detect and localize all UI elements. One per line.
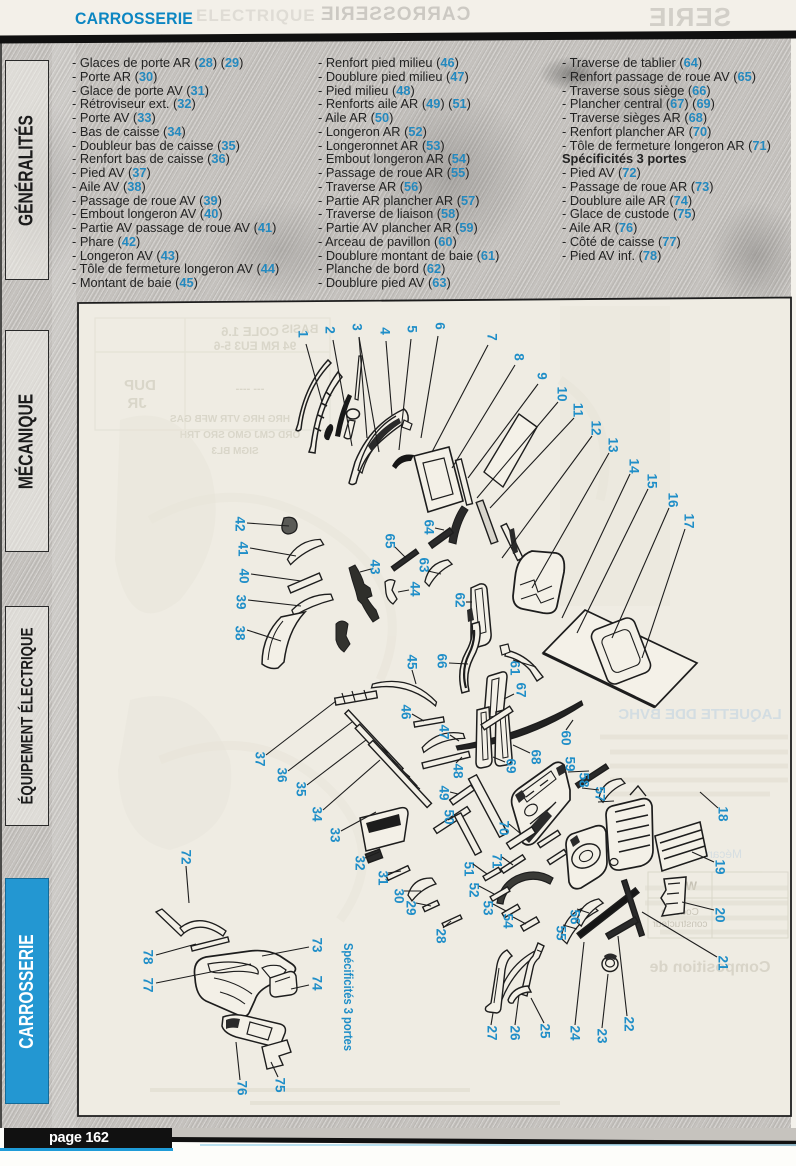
- svg-text:COLE 1.6: COLE 1.6: [221, 324, 279, 339]
- svg-text:43: 43: [368, 559, 383, 575]
- svg-text:69: 69: [504, 758, 519, 773]
- svg-text:DUP: DUP: [124, 377, 156, 394]
- svg-text:constructeur: constructeur: [652, 919, 708, 930]
- svg-text:73: 73: [310, 937, 325, 953]
- svg-text:13: 13: [606, 437, 621, 453]
- svg-text:2: 2: [323, 326, 338, 334]
- svg-text:76: 76: [235, 1080, 250, 1096]
- svg-text:26: 26: [508, 1025, 523, 1041]
- svg-text:8: 8: [512, 353, 527, 361]
- svg-text:49: 49: [437, 785, 452, 800]
- svg-text:57: 57: [593, 786, 608, 801]
- svg-text:62: 62: [453, 592, 468, 607]
- svg-text:LAQUETTE DDE BVHC: LAQUETTE DDE BVHC: [618, 706, 782, 723]
- svg-text:60: 60: [559, 730, 574, 745]
- svg-text:53: 53: [481, 900, 496, 916]
- svg-text:38: 38: [233, 625, 248, 641]
- svg-text:42: 42: [233, 516, 248, 531]
- svg-text:70: 70: [497, 820, 512, 835]
- svg-text:63: 63: [417, 557, 432, 573]
- svg-text:75: 75: [273, 1077, 288, 1093]
- svg-text:67: 67: [514, 682, 529, 697]
- svg-text:39: 39: [234, 594, 249, 609]
- svg-text:28: 28: [434, 928, 449, 944]
- svg-text:27: 27: [485, 1025, 500, 1040]
- svg-text:16: 16: [666, 492, 681, 508]
- svg-text:SIGM BL3: SIGM BL3: [211, 446, 259, 457]
- svg-text:--- ----: --- ----: [235, 383, 264, 395]
- svg-text:61: 61: [508, 660, 523, 676]
- svg-text:78: 78: [141, 949, 156, 965]
- svg-text:1: 1: [296, 330, 311, 338]
- svg-text:11: 11: [571, 403, 586, 418]
- svg-text:15: 15: [645, 473, 660, 489]
- svg-text:20: 20: [713, 907, 728, 922]
- svg-text:4: 4: [378, 327, 393, 335]
- svg-text:5: 5: [405, 325, 420, 333]
- svg-text:72: 72: [179, 849, 194, 864]
- svg-text:64: 64: [422, 519, 437, 535]
- svg-text:41: 41: [236, 541, 251, 557]
- svg-text:34: 34: [310, 806, 325, 822]
- svg-text:51: 51: [462, 861, 477, 877]
- svg-text:47: 47: [437, 724, 452, 739]
- svg-text:6: 6: [433, 322, 448, 330]
- svg-text:14: 14: [627, 458, 642, 474]
- svg-text:65: 65: [383, 533, 398, 549]
- svg-text:24: 24: [568, 1025, 583, 1041]
- svg-text:94 RM EU3 5-6: 94 RM EU3 5-6: [213, 339, 296, 353]
- svg-text:40: 40: [237, 568, 252, 583]
- svg-text:3: 3: [350, 323, 365, 331]
- svg-text:HRG HRG VTR WFB GAS: HRG HRG VTR WFB GAS: [170, 414, 290, 425]
- svg-text:10: 10: [555, 386, 570, 401]
- svg-text:77: 77: [141, 977, 156, 992]
- svg-text:54: 54: [501, 913, 516, 929]
- svg-text:9: 9: [535, 372, 550, 380]
- svg-text:25: 25: [538, 1023, 553, 1039]
- svg-text:35: 35: [294, 781, 309, 797]
- svg-text:22: 22: [622, 1016, 637, 1031]
- svg-text:JR: JR: [127, 395, 146, 412]
- svg-text:33: 33: [328, 827, 343, 843]
- svg-text:56: 56: [568, 909, 583, 925]
- svg-text:44: 44: [408, 581, 423, 597]
- svg-text:46: 46: [399, 704, 414, 720]
- svg-text:45: 45: [405, 654, 420, 670]
- svg-text:59: 59: [563, 756, 578, 771]
- svg-text:17: 17: [682, 513, 697, 528]
- svg-text:21: 21: [716, 955, 731, 971]
- svg-text:12: 12: [589, 420, 604, 435]
- svg-text:55: 55: [554, 925, 569, 941]
- svg-text:74: 74: [310, 975, 325, 991]
- svg-text:18: 18: [716, 806, 731, 822]
- svg-text:36: 36: [275, 767, 290, 783]
- svg-text:Spécificités 3 portes: Spécificités 3 portes: [341, 943, 356, 1051]
- svg-text:52: 52: [467, 882, 482, 897]
- svg-text:66: 66: [435, 653, 450, 669]
- svg-text:7: 7: [485, 333, 500, 341]
- svg-text:71: 71: [490, 853, 505, 869]
- svg-text:23: 23: [595, 1028, 610, 1044]
- svg-text:Composition de: Composition de: [649, 959, 770, 976]
- svg-text:48: 48: [451, 763, 466, 779]
- svg-text:37: 37: [253, 751, 268, 766]
- svg-text:68: 68: [529, 749, 544, 765]
- svg-text:58: 58: [577, 772, 592, 788]
- svg-text:ORD CMJ GMO SRO TRH: ORD CMJ GMO SRO TRH: [180, 430, 301, 441]
- svg-text:19: 19: [713, 859, 728, 874]
